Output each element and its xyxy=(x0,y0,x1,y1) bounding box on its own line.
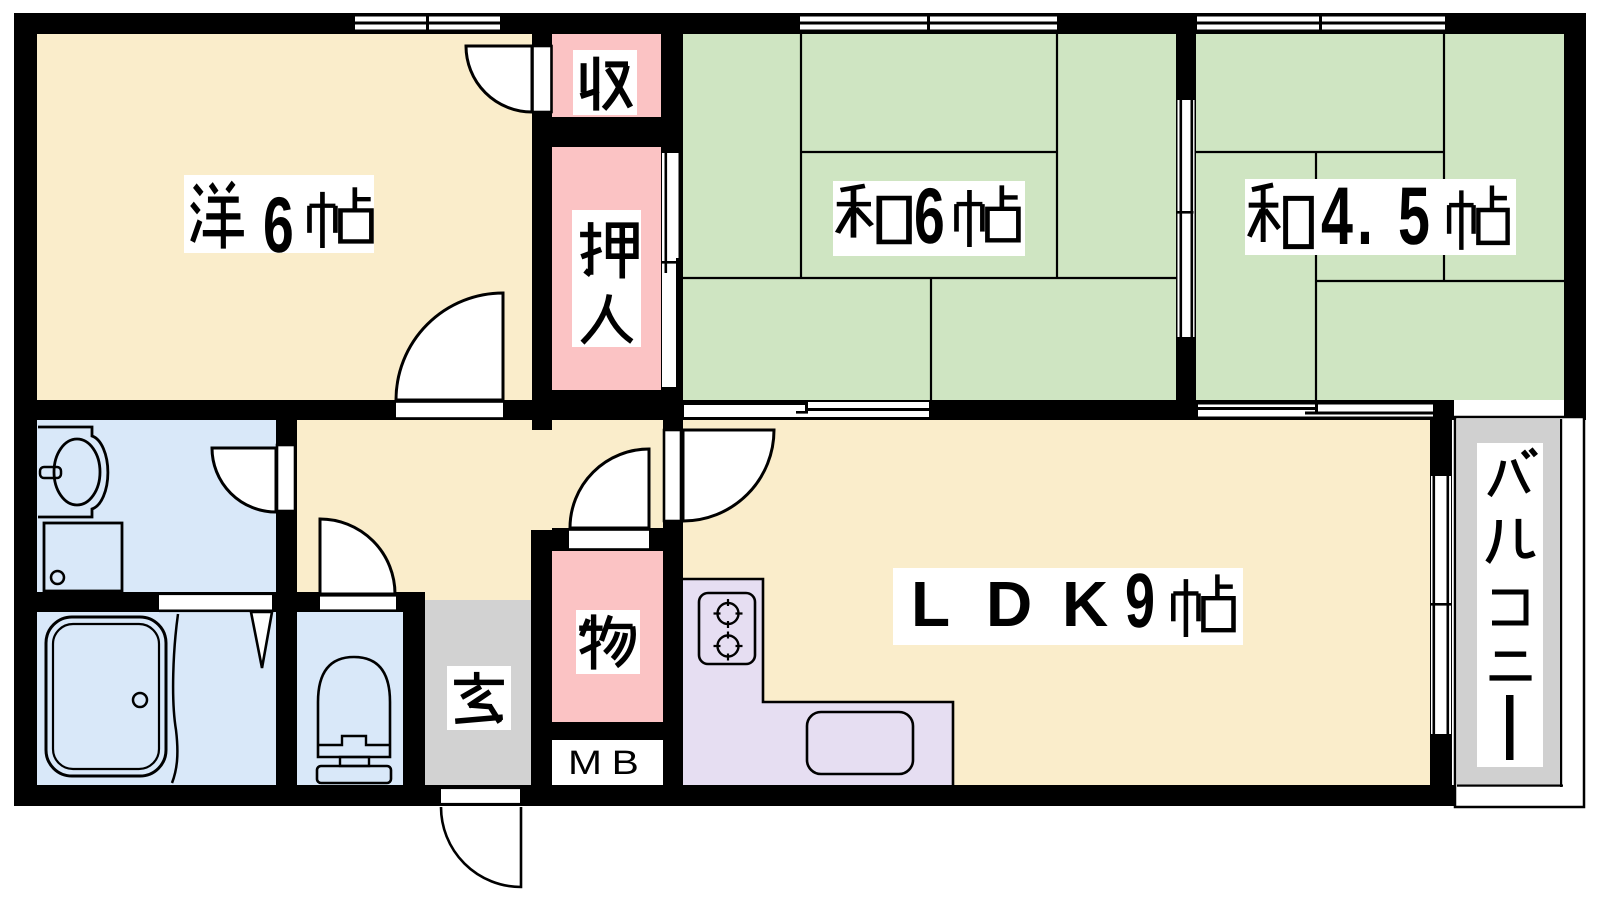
svg-text:4: 4 xyxy=(1321,171,1353,262)
svg-text:MB: MB xyxy=(568,744,648,782)
svg-text:K: K xyxy=(1062,568,1108,640)
svg-text:6: 6 xyxy=(263,180,294,269)
svg-text:6: 6 xyxy=(914,171,945,260)
svg-text:D: D xyxy=(986,568,1032,640)
svg-text:9: 9 xyxy=(1125,558,1155,644)
svg-text:5: 5 xyxy=(1398,171,1430,262)
svg-text:.: . xyxy=(1357,171,1373,262)
svg-text:L: L xyxy=(911,568,950,640)
